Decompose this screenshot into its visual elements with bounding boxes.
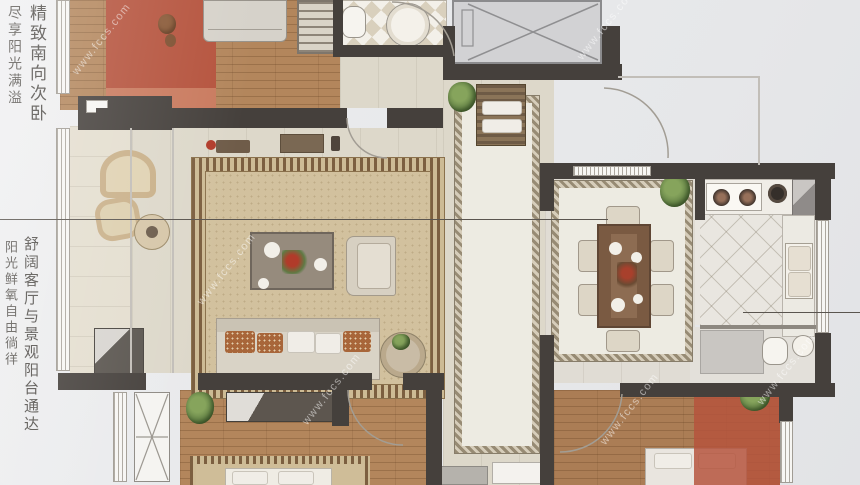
door-arcs <box>0 0 860 485</box>
door-arc-bedroom-bottomleft <box>348 390 403 445</box>
caption-mid-primary: 舒阔客厅与景观阳台通达 <box>20 236 41 434</box>
leader-line-kitchen <box>743 312 860 313</box>
door-arc-bathroom <box>392 2 454 56</box>
floorplan-photo: 精致南向次卧 尽享阳光满溢 舒阔客厅与景观阳台通达 阳光鲜氧自由徜徉 www.f… <box>0 0 860 485</box>
door-arc-entry <box>604 88 668 158</box>
door-arc-bedroom-topleft <box>347 118 387 158</box>
leader-line-living <box>0 219 608 220</box>
caption-top-primary: 精致南向次卧 <box>24 4 49 124</box>
caption-mid-secondary: 阳光鲜氧自由徜徉 <box>1 240 20 368</box>
caption-top-secondary: 尽享阳光满溢 <box>5 5 25 107</box>
